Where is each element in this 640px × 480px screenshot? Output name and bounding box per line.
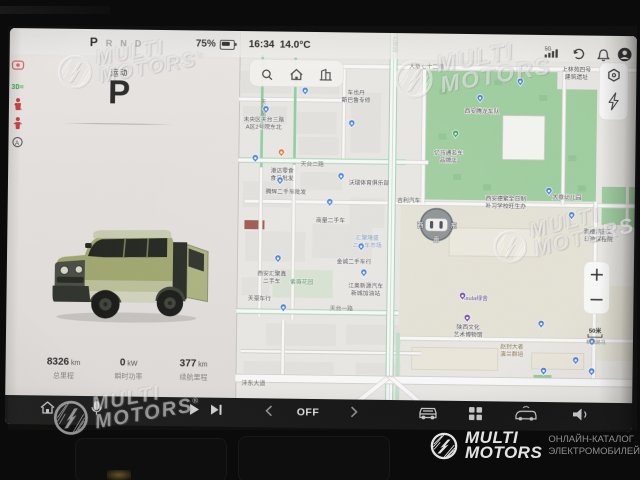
svg-text:南: 南 [433,236,439,244]
svg-text:二手车: 二手车 [263,277,281,285]
svg-text:品牌店: 品牌店 [440,156,458,164]
svg-text:东: 东 [450,222,456,230]
svg-text:3D≡: 3D≡ [11,84,24,92]
svg-text:OFF: OFF [297,406,320,418]
svg-text:A: A [15,140,20,147]
svg-text:5G: 5G [545,47,552,53]
svg-text:50米: 50米 [589,327,602,335]
svg-text:车也丹: 车也丹 [347,88,365,96]
svg-text:西: 西 [417,222,423,229]
